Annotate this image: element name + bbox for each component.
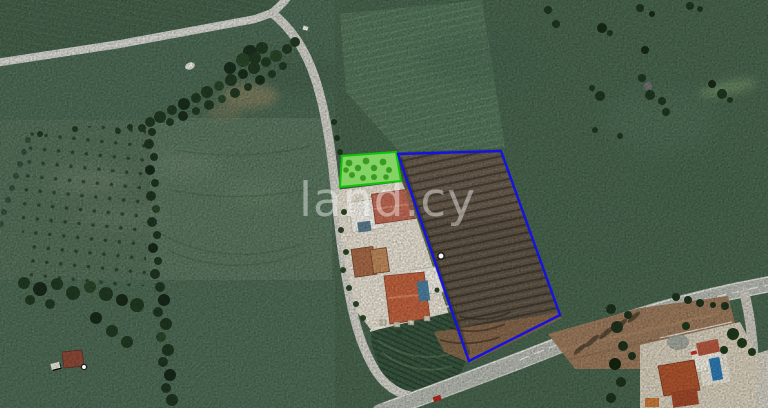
satellite-map-image[interactable]: land.cy — [0, 0, 768, 408]
plot-point-marker — [438, 253, 444, 259]
green-highlighted-plot — [340, 152, 401, 187]
field-point-marker — [81, 364, 86, 369]
satellite-map-canvas: land.cy — [0, 0, 768, 408]
